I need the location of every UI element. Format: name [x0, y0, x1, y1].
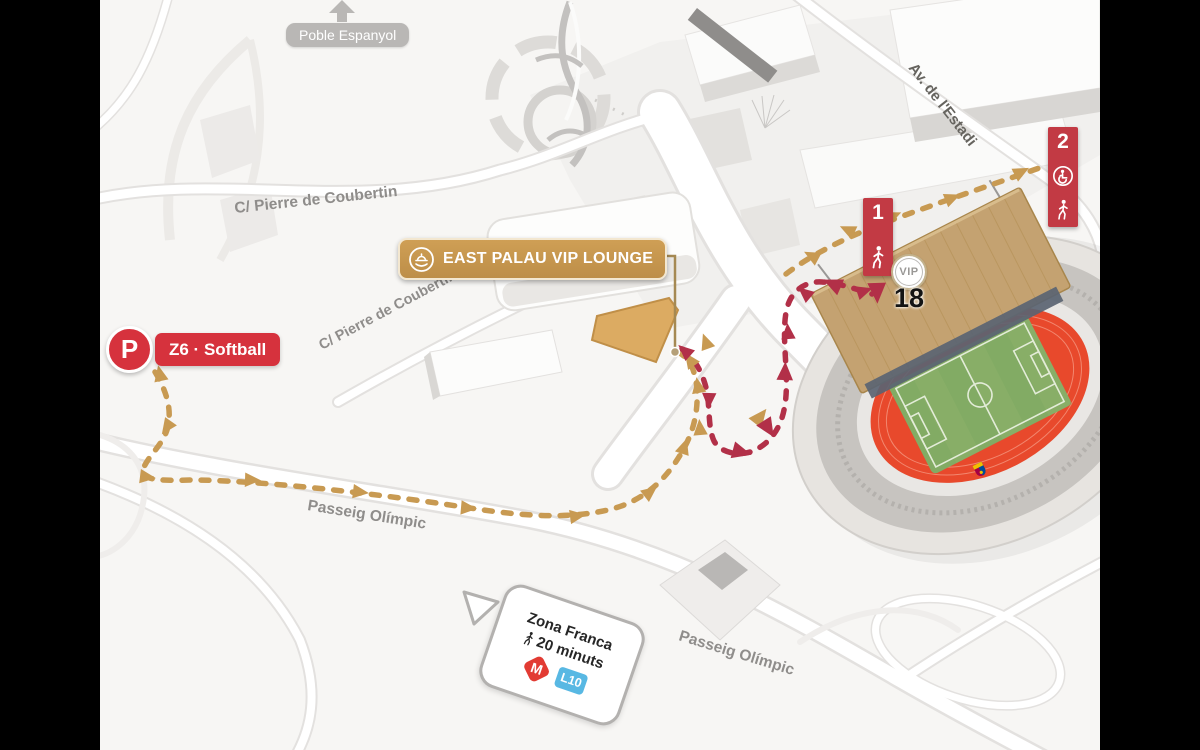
waypoint-1-badge: 1: [863, 198, 893, 276]
vip-lounge-label: EAST PALAU VIP LOUNGE: [443, 250, 653, 268]
parking-zone-label: Z6 · Softball: [155, 333, 280, 366]
wheelchair-icon: [1052, 165, 1074, 187]
metro-logo: M: [521, 653, 553, 685]
metro-line-10-badge: L10: [554, 666, 589, 696]
hospitality-icon: [408, 246, 435, 273]
vip-entrance-label: VIP: [899, 266, 918, 278]
street-label-passeig-2: Passeig Olímpic: [677, 628, 797, 679]
vip-lounge-banner: EAST PALAU VIP LOUNGE: [398, 238, 667, 280]
pedestrian-icon: [869, 244, 887, 270]
screenshot-stage: C/ Pierre de Coubertin C/ Pierre de Coub…: [0, 0, 1200, 750]
gate-number: 18: [894, 283, 924, 314]
parking-icon: P: [106, 326, 153, 373]
waypoint-2-number: 2: [1057, 131, 1069, 153]
pedestrian-icon: [1055, 198, 1071, 221]
north-arrow-icon: [328, 0, 356, 22]
waypoint-1-number: 1: [872, 202, 884, 224]
waypoint-2-badge: 2: [1048, 127, 1078, 227]
venue-map: C/ Pierre de Coubertin C/ Pierre de Coub…: [100, 0, 1100, 750]
poi-label-poble-espanyol: Poble Espanyol: [286, 23, 409, 47]
vip-lounge-building: [592, 298, 678, 362]
